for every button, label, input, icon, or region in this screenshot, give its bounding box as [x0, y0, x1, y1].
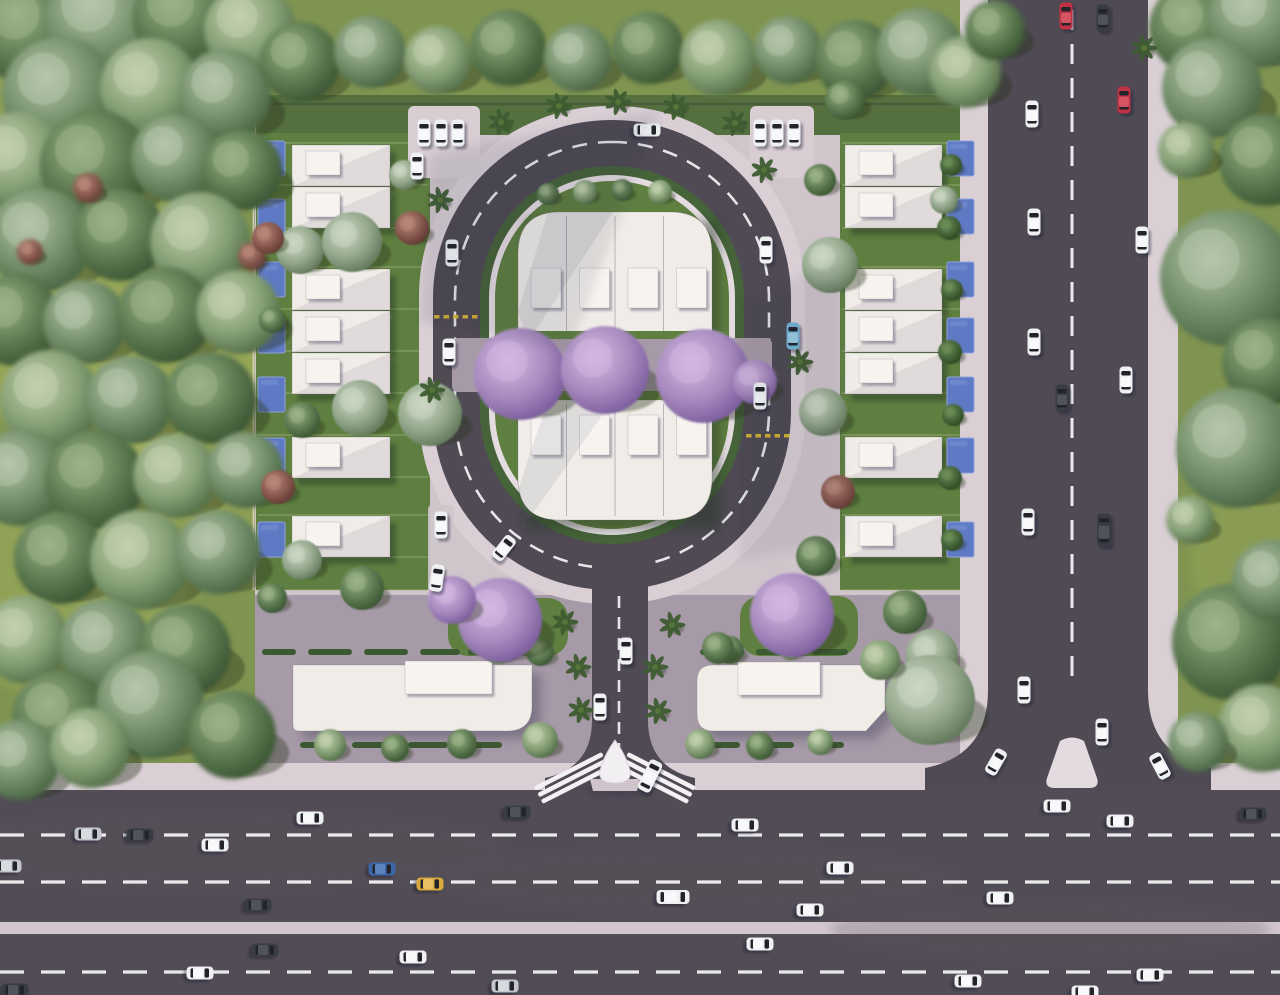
tree-highlight	[622, 22, 654, 54]
tree-highlight	[71, 611, 112, 652]
car	[729, 819, 759, 835]
tree-highlight	[54, 291, 92, 329]
car-roof	[431, 574, 442, 586]
tree-highlight	[973, 8, 1000, 35]
car-roof	[208, 840, 218, 850]
car	[1134, 969, 1164, 985]
car	[620, 638, 636, 668]
tree-highlight	[888, 20, 928, 60]
car-windshield	[845, 863, 850, 872]
car-windshield	[522, 807, 527, 816]
tree-highlight	[143, 126, 183, 166]
car	[952, 975, 982, 991]
car-windshield	[510, 981, 515, 990]
tree-highlight	[943, 157, 953, 167]
car	[0, 984, 29, 995]
tree-highlight	[830, 85, 848, 103]
car-roof	[1023, 519, 1033, 529]
car-roof	[1019, 687, 1029, 697]
car-windshield	[1090, 987, 1095, 995]
tree-highlight	[55, 125, 105, 175]
tree-highlight	[164, 206, 209, 251]
car	[411, 153, 427, 183]
tree-highlight	[941, 469, 952, 480]
car-windshield	[1099, 518, 1109, 523]
car-roof	[1113, 816, 1123, 826]
plaza-planter-strip	[420, 649, 460, 655]
car-roof	[1119, 97, 1129, 107]
car-roof	[621, 648, 631, 658]
car	[184, 967, 214, 983]
roof-box	[859, 151, 893, 175]
tree-highlight	[400, 216, 415, 231]
palm-crown	[652, 664, 658, 670]
pool-sparkle	[261, 380, 278, 385]
palm-crown	[429, 387, 435, 393]
car	[1118, 87, 1134, 117]
car-rear-window	[661, 892, 665, 902]
car-roof	[510, 807, 520, 817]
tree-highlight	[945, 407, 955, 417]
car-roof	[423, 879, 433, 889]
tree-highlight	[111, 666, 160, 715]
car	[1120, 367, 1136, 397]
roof-box	[859, 443, 893, 467]
car-roof	[595, 704, 605, 714]
plaza-planter-strip	[308, 649, 352, 655]
car	[760, 237, 776, 267]
palm-crown	[655, 708, 661, 714]
car	[1060, 3, 1076, 33]
roof-box	[306, 443, 340, 467]
car-windshield	[1019, 681, 1028, 686]
tree-highlight	[191, 61, 232, 102]
tree-highlight	[217, 442, 251, 476]
pool-sparkle	[950, 380, 967, 385]
car-windshield	[1258, 809, 1263, 818]
car-windshield	[621, 642, 630, 647]
car-roof	[375, 864, 385, 874]
car-roof	[1, 861, 11, 871]
car	[501, 806, 531, 822]
car-roof	[1098, 15, 1108, 25]
palm-crown	[761, 167, 767, 173]
tree-highlight	[1243, 551, 1279, 587]
tree-highlight	[77, 177, 91, 191]
car-roof	[833, 863, 843, 873]
car-windshield	[453, 124, 462, 129]
car-windshield	[595, 698, 604, 703]
roof-box	[306, 359, 340, 383]
car-windshield	[1029, 213, 1038, 218]
car-windshield	[436, 124, 445, 129]
car-windshield	[93, 829, 98, 838]
car-windshield	[435, 879, 440, 888]
tree-highlight	[187, 521, 225, 559]
car-windshield	[1125, 816, 1130, 825]
tree-highlight	[287, 545, 305, 563]
car	[824, 862, 854, 878]
car-roof	[419, 130, 429, 140]
tree-highlight	[573, 338, 613, 378]
car-roof	[1029, 219, 1039, 229]
palm-crown	[669, 622, 675, 628]
roof-box	[628, 268, 658, 308]
tree-highlight	[18, 53, 70, 105]
car-windshield	[750, 820, 755, 829]
car	[1104, 815, 1134, 831]
car-windshield	[387, 864, 392, 873]
car	[435, 512, 451, 542]
tree-highlight	[340, 388, 365, 413]
tree-highlight	[1176, 52, 1221, 97]
tree-highlight	[104, 524, 149, 569]
tree-highlight	[944, 532, 954, 542]
tree-highlight	[130, 280, 173, 323]
pool-sparkle	[950, 321, 967, 326]
roof-box	[859, 522, 893, 546]
tree-highlight	[865, 645, 883, 663]
car-roof	[961, 976, 971, 986]
car	[788, 120, 804, 150]
tree-highlight	[451, 733, 465, 747]
roof-box	[306, 151, 340, 175]
car	[1237, 808, 1267, 824]
car	[794, 904, 824, 920]
car-windshield	[270, 945, 275, 954]
car-roof	[1078, 987, 1088, 995]
car-windshield	[1119, 91, 1128, 96]
car-windshield	[444, 343, 453, 348]
tree-highlight	[213, 141, 249, 177]
palm-crown	[732, 120, 738, 126]
car	[414, 878, 444, 894]
roof-box	[677, 268, 707, 308]
car	[242, 899, 272, 915]
tree-highlight	[553, 33, 584, 64]
tree-highlight	[889, 596, 909, 616]
car	[1028, 329, 1044, 359]
tree-highlight	[944, 282, 954, 292]
tree-highlight	[1231, 126, 1272, 167]
car-roof	[803, 905, 813, 915]
palm-crown	[1141, 45, 1147, 51]
roof-box	[859, 193, 893, 217]
tree-highlight	[261, 587, 275, 601]
car-windshield	[1023, 513, 1032, 518]
roof-box	[306, 275, 340, 299]
car-roof	[453, 130, 463, 140]
car	[1028, 209, 1044, 239]
tree-highlight	[669, 342, 711, 384]
car	[1018, 677, 1034, 707]
tree-highlight	[1230, 696, 1270, 736]
car-roof	[1029, 339, 1039, 349]
car-windshield	[1098, 9, 1107, 14]
car-roof	[753, 939, 763, 949]
roof-box	[628, 415, 658, 455]
car-windshield	[205, 968, 210, 977]
car	[1069, 986, 1099, 995]
car-rear-window	[1099, 539, 1109, 543]
tree-highlight	[256, 226, 270, 240]
car-windshield	[418, 952, 423, 961]
car	[1026, 101, 1042, 131]
car-roof	[789, 130, 799, 140]
tree-highlight	[761, 584, 799, 622]
tree-highlight	[207, 281, 245, 319]
roof-box	[306, 317, 340, 341]
car	[124, 829, 154, 845]
car-windshield	[1027, 105, 1036, 110]
car-windshield	[315, 813, 320, 822]
car-roof	[498, 981, 508, 991]
palm-crown	[575, 664, 581, 670]
van	[654, 890, 690, 907]
tree-highlight	[941, 343, 952, 354]
tree-highlight	[393, 164, 407, 178]
tree-highlight	[413, 35, 444, 66]
tree-highlight	[318, 733, 332, 747]
plaza-planter-strip	[262, 649, 296, 655]
tree-highlight	[266, 475, 281, 490]
aerial-masterplan-render	[0, 0, 1280, 995]
tree-highlight	[176, 364, 217, 405]
pool-sparkle	[261, 525, 278, 530]
car-roof	[193, 968, 203, 978]
tree-highlight	[1166, 130, 1191, 155]
car-windshield	[789, 124, 798, 129]
tree-highlight	[26, 524, 67, 565]
car-windshield	[412, 157, 421, 162]
palm-crown	[556, 103, 562, 109]
car	[1022, 509, 1038, 539]
car-windshield	[436, 516, 445, 521]
car	[1041, 800, 1071, 816]
car-roof	[8, 985, 18, 995]
tree-highlight	[86, 201, 127, 242]
car-windshield	[765, 939, 770, 948]
car	[594, 694, 610, 724]
tree-highlight	[98, 368, 138, 408]
car-roof	[755, 130, 765, 140]
tree-highlight	[1172, 502, 1194, 524]
tree-highlight	[1176, 720, 1203, 747]
plaza-planter-strip	[364, 649, 408, 655]
tree-highlight	[271, 33, 307, 69]
car-roof	[1099, 526, 1110, 539]
pool-sparkle	[950, 265, 967, 270]
tree-highlight	[144, 445, 182, 483]
car	[754, 120, 770, 150]
tree-highlight	[750, 736, 763, 749]
car-roof	[444, 349, 454, 359]
tree-highlight	[1192, 404, 1246, 458]
tree-highlight	[346, 572, 366, 592]
tree-highlight	[242, 246, 255, 259]
tree-highlight	[114, 52, 159, 97]
tree-highlight	[826, 31, 862, 67]
tree-highlight	[385, 738, 398, 751]
car	[443, 339, 459, 369]
tree-highlight	[689, 733, 703, 747]
car-roof	[761, 247, 771, 257]
car-windshield	[1121, 371, 1130, 376]
car	[744, 938, 774, 954]
roof-box	[859, 317, 893, 341]
asphalt-mottle	[440, 846, 960, 914]
tree-highlight	[200, 703, 240, 743]
tree-highlight	[1178, 228, 1239, 289]
car-roof	[993, 893, 1003, 903]
palm-crown	[615, 99, 621, 105]
car	[418, 120, 434, 150]
car-windshield	[419, 124, 428, 129]
car-roof	[406, 952, 416, 962]
car-roof	[412, 163, 422, 173]
render-canvas	[0, 0, 1280, 995]
car	[199, 839, 229, 855]
car	[984, 892, 1014, 908]
car-roof	[1050, 801, 1060, 811]
palm-crown	[498, 119, 504, 125]
car-windshield	[145, 830, 150, 839]
car	[489, 980, 519, 995]
palm-crown	[673, 104, 679, 110]
car-roof	[1057, 395, 1067, 405]
car-roof	[664, 892, 677, 903]
car	[397, 951, 427, 967]
car-windshield	[772, 124, 781, 129]
palm-crown	[578, 707, 584, 713]
car-roof	[81, 829, 91, 839]
tree-highlight	[14, 364, 59, 409]
tree-highlight	[289, 407, 305, 423]
car-roof	[133, 830, 143, 840]
car	[249, 944, 279, 960]
car-windshield	[20, 985, 25, 994]
plaza-planter-strip	[408, 742, 448, 748]
car-windshield	[1057, 389, 1066, 394]
palm-crown	[562, 619, 568, 625]
car	[1096, 719, 1112, 749]
roof-box	[738, 662, 820, 695]
roof-box	[306, 193, 340, 217]
tree-highlight	[651, 183, 662, 194]
tree-highlight	[934, 190, 947, 203]
car-roof	[1061, 13, 1071, 23]
car-roof	[251, 900, 261, 910]
tree-highlight	[1188, 600, 1240, 652]
car-windshield	[1029, 333, 1038, 338]
car	[366, 863, 396, 879]
tree-highlight	[330, 220, 357, 247]
car-windshield	[1155, 970, 1160, 979]
tree-highlight	[690, 30, 724, 64]
car-roof	[772, 130, 782, 140]
tree-highlight	[939, 46, 971, 78]
car-roof	[1143, 970, 1153, 980]
car-windshield	[1061, 7, 1070, 12]
tree-highlight	[61, 719, 97, 755]
car-windshield	[1137, 231, 1146, 236]
car-roof	[1246, 809, 1256, 819]
car-windshield	[761, 241, 770, 246]
roof-box	[405, 661, 492, 694]
car-windshield	[13, 861, 18, 870]
car-roof	[1121, 377, 1131, 387]
car-windshield	[681, 892, 686, 902]
tree-highlight	[527, 727, 543, 743]
car-windshield	[815, 905, 820, 914]
car-windshield	[263, 900, 268, 909]
car-roof	[1027, 111, 1037, 121]
car	[1136, 227, 1152, 257]
car-roof	[1137, 237, 1147, 247]
car	[1097, 5, 1113, 35]
cloud-shadow	[740, 260, 845, 560]
tree-highlight	[21, 243, 33, 255]
car-windshield	[220, 840, 225, 849]
tree-highlight	[811, 733, 823, 745]
pool-sparkle	[950, 441, 967, 446]
asphalt-mottle	[830, 900, 1270, 960]
car-windshield	[755, 124, 764, 129]
tree-highlight	[480, 20, 514, 54]
car-windshield	[1097, 723, 1106, 728]
tree-highlight	[263, 311, 275, 323]
tree-highlight	[59, 444, 104, 489]
car-roof	[258, 945, 268, 955]
tree-highlight	[486, 340, 527, 381]
car	[294, 812, 324, 828]
car-roof	[738, 820, 748, 830]
pool-sparkle	[950, 144, 967, 149]
tree-highlight	[25, 683, 68, 726]
van	[1097, 514, 1114, 550]
car-roof	[436, 130, 446, 140]
car-windshield	[1005, 893, 1010, 902]
tree-highlight	[808, 168, 822, 182]
car	[435, 120, 451, 150]
car	[771, 120, 787, 150]
car-windshield	[1062, 801, 1067, 810]
car	[1056, 385, 1072, 415]
tree-highlight	[706, 636, 720, 650]
car-roof	[303, 813, 313, 823]
tree-highlight	[940, 219, 951, 230]
roof-box	[859, 359, 893, 383]
car-roof	[1097, 729, 1107, 739]
car	[452, 120, 468, 150]
tree-highlight	[344, 26, 376, 58]
tree-highlight	[763, 25, 794, 56]
car-roof	[436, 522, 446, 532]
tree-highlight	[1234, 330, 1274, 370]
car-windshield	[973, 976, 978, 985]
car	[72, 828, 102, 844]
